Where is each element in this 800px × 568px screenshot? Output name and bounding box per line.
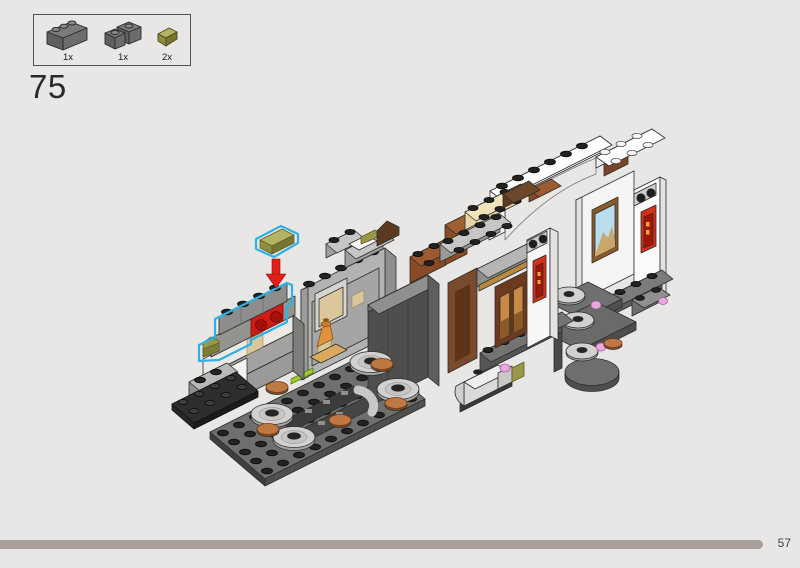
stud xyxy=(267,450,278,456)
stud xyxy=(358,420,369,426)
stud xyxy=(256,441,267,447)
pink-jewel-stud xyxy=(591,301,601,309)
stud xyxy=(345,229,355,234)
stud xyxy=(237,385,247,390)
stud xyxy=(631,281,641,286)
stud xyxy=(357,375,368,381)
stud xyxy=(218,430,229,436)
parts-box: 1x 1x xyxy=(33,14,191,66)
round-disc xyxy=(566,343,598,361)
stud xyxy=(211,369,222,375)
snot-stud xyxy=(637,194,645,202)
facet-brick-2x2-icon xyxy=(101,18,145,52)
stud xyxy=(491,214,501,219)
part-qty: 1x xyxy=(118,53,128,63)
part-qty: 2x xyxy=(162,53,172,63)
brick-1x3-icon xyxy=(42,18,94,52)
cart xyxy=(455,362,524,412)
red-scroll-tile xyxy=(533,255,546,303)
stud xyxy=(616,141,626,146)
stud xyxy=(240,449,251,455)
stud xyxy=(194,392,204,397)
snot-stud xyxy=(539,235,547,243)
stud xyxy=(330,374,341,380)
stud xyxy=(443,238,453,243)
step-number: 75 xyxy=(29,70,67,103)
stud xyxy=(497,183,508,189)
stud xyxy=(513,175,524,181)
stud xyxy=(483,347,493,352)
copper-round-tile xyxy=(604,339,622,350)
olive-slope xyxy=(512,362,524,382)
stud xyxy=(627,150,637,155)
stud xyxy=(262,468,273,474)
stud xyxy=(245,431,256,437)
stud xyxy=(189,409,199,414)
pink-jewel-stud xyxy=(659,298,668,305)
stud xyxy=(326,436,337,442)
stud xyxy=(486,231,496,236)
instruction-page: 1x 1x xyxy=(0,0,800,568)
stud xyxy=(615,289,625,294)
stud xyxy=(195,377,206,383)
stud xyxy=(282,398,293,404)
stud xyxy=(278,460,289,466)
stud xyxy=(561,151,572,157)
progress-bar xyxy=(0,540,763,549)
stud xyxy=(632,133,642,138)
stud xyxy=(484,197,494,202)
stud xyxy=(229,439,240,445)
stud xyxy=(178,400,188,405)
stud xyxy=(468,205,478,210)
stud xyxy=(342,428,353,434)
copper-round-tile xyxy=(385,398,407,411)
stud xyxy=(429,243,439,248)
stud xyxy=(413,251,423,256)
placement-callout xyxy=(256,226,298,288)
copper-round-tile xyxy=(257,424,279,437)
part-olive-slope: 2x xyxy=(152,18,182,63)
stud xyxy=(294,452,305,458)
stud xyxy=(652,288,661,293)
stud xyxy=(545,159,556,165)
stud xyxy=(454,247,464,252)
copper-round-tile xyxy=(329,415,351,428)
stud xyxy=(424,260,434,265)
lego-model-illustration xyxy=(0,0,800,568)
stud xyxy=(459,230,469,235)
part-facet-brick-2x2: 1x xyxy=(101,18,145,63)
snot-stud xyxy=(647,189,655,197)
pink-jewel-stud xyxy=(500,364,510,372)
stud xyxy=(251,458,262,464)
olive-slope-icon xyxy=(152,18,182,52)
stud xyxy=(320,273,331,279)
stud xyxy=(529,167,540,173)
stud xyxy=(475,222,485,227)
copper-round-tile xyxy=(371,359,393,372)
page-number: 57 xyxy=(778,535,791,552)
stud xyxy=(304,281,315,287)
stud xyxy=(636,296,645,301)
stud xyxy=(314,382,325,388)
down-arrow-icon xyxy=(266,259,286,288)
copper-round-tile xyxy=(266,382,288,395)
stud xyxy=(502,223,512,228)
stud xyxy=(577,143,588,149)
stud xyxy=(205,401,215,406)
stud xyxy=(221,393,231,398)
stud xyxy=(647,273,657,278)
part-qty: 1x xyxy=(63,53,73,63)
part-brick-1x3: 1x xyxy=(42,18,94,63)
round-disc xyxy=(273,427,315,451)
stud xyxy=(479,214,489,219)
stud xyxy=(643,142,653,147)
stud xyxy=(234,422,245,428)
olive-slope-piece xyxy=(260,229,294,254)
stud xyxy=(600,149,610,154)
stud xyxy=(329,237,339,242)
stud xyxy=(611,158,621,163)
stud xyxy=(226,376,236,381)
red-scroll-tile xyxy=(641,205,656,253)
stud xyxy=(210,384,220,389)
snot-stud xyxy=(529,240,537,248)
stud xyxy=(298,390,309,396)
stud xyxy=(470,239,480,244)
